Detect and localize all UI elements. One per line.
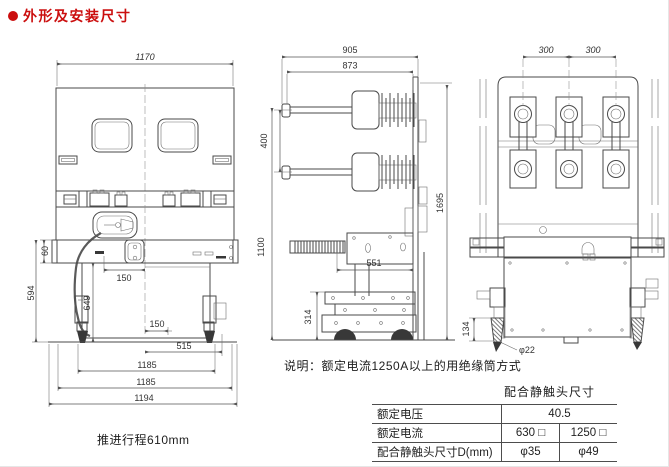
- red-bullet-icon: [8, 11, 18, 21]
- side-view-drawing: 905 873 400 1100 1695 551 314: [255, 40, 470, 352]
- dim-551: 551: [366, 258, 381, 268]
- rated-voltage-value: 40.5: [502, 405, 618, 424]
- side-right-wheel: [391, 329, 413, 340]
- dim-1194: 1194: [134, 393, 153, 403]
- contact-dia-49: φ49: [560, 443, 618, 462]
- table-row: 配合静触头尺寸D(mm) φ35 φ49: [372, 443, 617, 462]
- side-upper-pole: [282, 91, 416, 129]
- contact-dia-35: φ35: [502, 443, 560, 462]
- dim-150-mid: 150: [116, 273, 131, 283]
- front-dimensions: 1170 60 594 649 150 150 515 1185 1185: [26, 52, 237, 407]
- dim-1695: 1695: [435, 193, 445, 213]
- rear-left-wheel: [491, 318, 504, 342]
- page-header: 外形及安装尺寸: [8, 6, 132, 26]
- dim-150-low: 150: [149, 319, 164, 329]
- dim-1170: 1170: [135, 52, 154, 62]
- side-rack: [295, 241, 345, 253]
- dim-649: 649: [82, 295, 92, 310]
- dim-314: 314: [303, 309, 313, 324]
- side-dimensions: 905 873 400 1100 1695 551 314: [256, 45, 452, 340]
- row-label: 额定电压: [372, 405, 502, 424]
- dim-400: 400: [259, 133, 269, 148]
- dim-594: 594: [26, 285, 36, 300]
- front-right-wheel: [204, 331, 215, 343]
- side-lower-pole: [282, 153, 416, 191]
- dim-1185: 1185: [137, 360, 156, 370]
- rear-lock-icon: [582, 243, 594, 255]
- page-title: 外形及安装尺寸: [23, 6, 132, 26]
- static-contact-table: 额定电压 40.5 额定电流 630 □ 1250 □ 配合静触头尺寸D(mm)…: [372, 404, 617, 462]
- rear-dimensions: 300 300 134 φ22: [461, 45, 616, 355]
- rear-view-drawing: 300 300 134 φ22: [466, 40, 669, 358]
- rated-current-630: 630 □: [502, 424, 560, 443]
- front-left-wheel: [77, 331, 88, 343]
- dim-phi22: φ22: [519, 345, 535, 355]
- rear-base: [470, 224, 664, 352]
- table-row: 额定电压 40.5: [372, 405, 617, 424]
- row-label: 配合静触头尺寸D(mm): [372, 443, 502, 462]
- dim-300-left: 300: [538, 45, 553, 55]
- rear-right-wheel: [631, 318, 644, 342]
- table-row: 额定电流 630 □ 1250 □: [372, 424, 617, 443]
- dim-515: 515: [176, 341, 191, 351]
- dim-873: 873: [342, 61, 357, 71]
- travel-caption: 推进行程610mm: [97, 431, 190, 448]
- side-left-wheel: [334, 329, 356, 340]
- dim-134: 134: [461, 321, 471, 336]
- rear-poles: [510, 97, 629, 188]
- note-text: 说明：额定电流1250A以上的用绝缘筒方式: [284, 357, 521, 374]
- dim-905: 905: [342, 45, 357, 55]
- dim-60: 60: [40, 246, 50, 256]
- catalog-page: 外形及安装尺寸: [0, 0, 669, 467]
- front-view-drawing: 1170 60 594 649 150 150 515 1185 1185: [30, 40, 275, 420]
- dim-300-right: 300: [585, 45, 600, 55]
- dim-1165-row: 1185: [136, 377, 155, 387]
- rated-current-1250: 1250 □: [560, 424, 618, 443]
- side-mechanism: [272, 233, 455, 340]
- contact-table-title: 配合静触头尺寸: [504, 383, 595, 400]
- dim-1100: 1100: [256, 237, 266, 256]
- row-label: 额定电流: [372, 424, 502, 443]
